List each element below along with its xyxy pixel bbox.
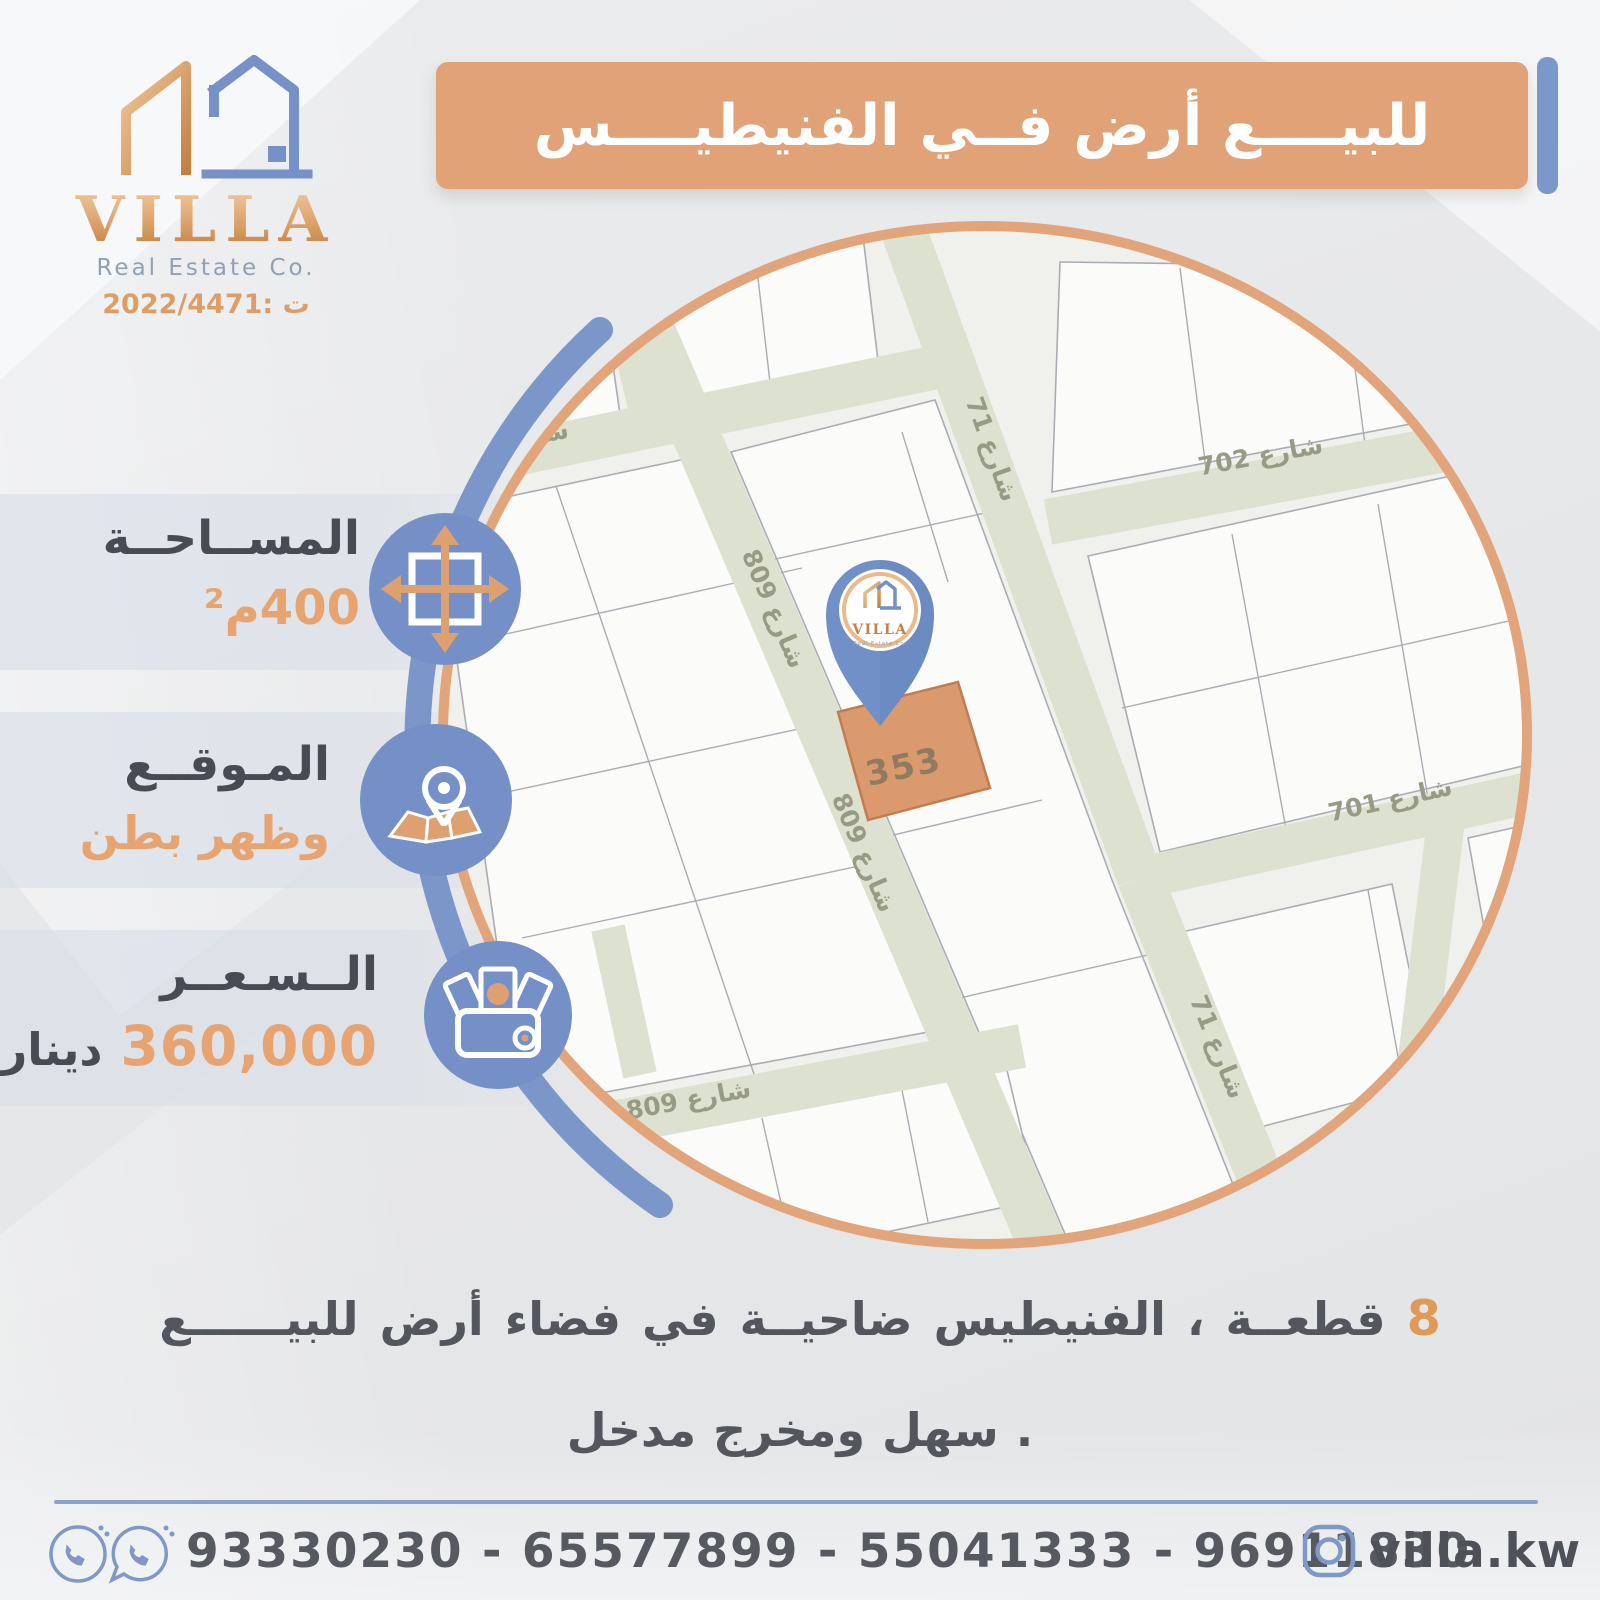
description: للبيــــــعأرضفضاءفيضاحيــةالفنيطيس،قطعـ… — [80, 1290, 1520, 1457]
footer-divider — [54, 1500, 1538, 1504]
map-pin-icon — [360, 724, 512, 876]
word: سهل — [882, 1403, 999, 1457]
company-logo: VILLA Real Estate Co. ت :2022/4471 — [58, 28, 354, 320]
description-line-2: مدخلومخرجسهل. — [80, 1403, 1520, 1457]
word: الفنيطيس — [934, 1292, 1166, 1346]
word: للبيــــــع — [159, 1292, 358, 1346]
expand-arrows-icon — [369, 513, 521, 665]
word: . — [1016, 1403, 1033, 1457]
word: ، — [1187, 1292, 1204, 1346]
wallet-money-icon — [424, 941, 572, 1089]
phone-icon — [51, 1527, 105, 1581]
word: ومخرج — [713, 1403, 865, 1457]
word: وظهر — [199, 806, 330, 861]
word: بطن — [80, 806, 183, 861]
price-value: دينار 360,000 — [8, 1014, 378, 1078]
instagram-handle[interactable]: villa.kw — [1370, 1524, 1581, 1579]
instagram-icon[interactable] — [1300, 1522, 1358, 1580]
logo-subtitle: Real Estate Co. — [58, 255, 354, 281]
location-label: المـوقــع — [0, 738, 330, 792]
page-title: للبيــــع أرض فــي الفنيطيــــس — [534, 93, 1430, 159]
word: فضاء — [505, 1292, 621, 1346]
location-value: بطنوظهر — [0, 806, 330, 861]
price-amount: 360,000 — [120, 1014, 378, 1078]
pin-subtitle-text: Real Estate Co. — [853, 641, 907, 647]
word: مدخل — [567, 1403, 696, 1457]
pin-brand-text: VILLA — [851, 622, 907, 638]
area-label: المســاحــة — [0, 512, 360, 566]
logo-brand-text: VILLA — [58, 188, 354, 251]
word: أرض — [380, 1292, 484, 1346]
info-location: المـوقــع بطنوظهر — [0, 738, 330, 861]
word: قطعــة — [1225, 1292, 1385, 1346]
title-banner: للبيــــع أرض فــي الفنيطيــــس — [436, 62, 1528, 189]
logo-license-number: ت :2022/4471 — [58, 289, 354, 320]
phone-icons — [46, 1516, 182, 1588]
word: 8 — [1407, 1290, 1441, 1347]
banner-accent-bar — [1537, 57, 1558, 194]
phone-numbers[interactable]: 93330230 - 65577899 - 55041333 - 9691183… — [186, 1524, 1471, 1579]
description-line-1: للبيــــــعأرضفضاءفيضاحيــةالفنيطيس،قطعـ… — [80, 1290, 1520, 1347]
whatsapp-icon — [112, 1528, 166, 1580]
word: في — [642, 1292, 719, 1346]
word: ضاحيــة — [740, 1292, 913, 1346]
area-value: 400م² — [0, 580, 360, 638]
logo-buildings-icon — [86, 28, 326, 180]
poster: شارع 809 شارع 71 شارع 702 شارع 809 شارع … — [0, 0, 1600, 1600]
map-content: شارع 809 شارع 71 شارع 702 شارع 809 شارع … — [428, 226, 1575, 1294]
info-area: المســاحــة 400م² — [0, 512, 360, 638]
price-label: الــسـعــر — [8, 948, 378, 1002]
price-currency: دينار — [1, 1023, 102, 1076]
info-price: الــسـعــر دينار 360,000 — [8, 948, 378, 1078]
